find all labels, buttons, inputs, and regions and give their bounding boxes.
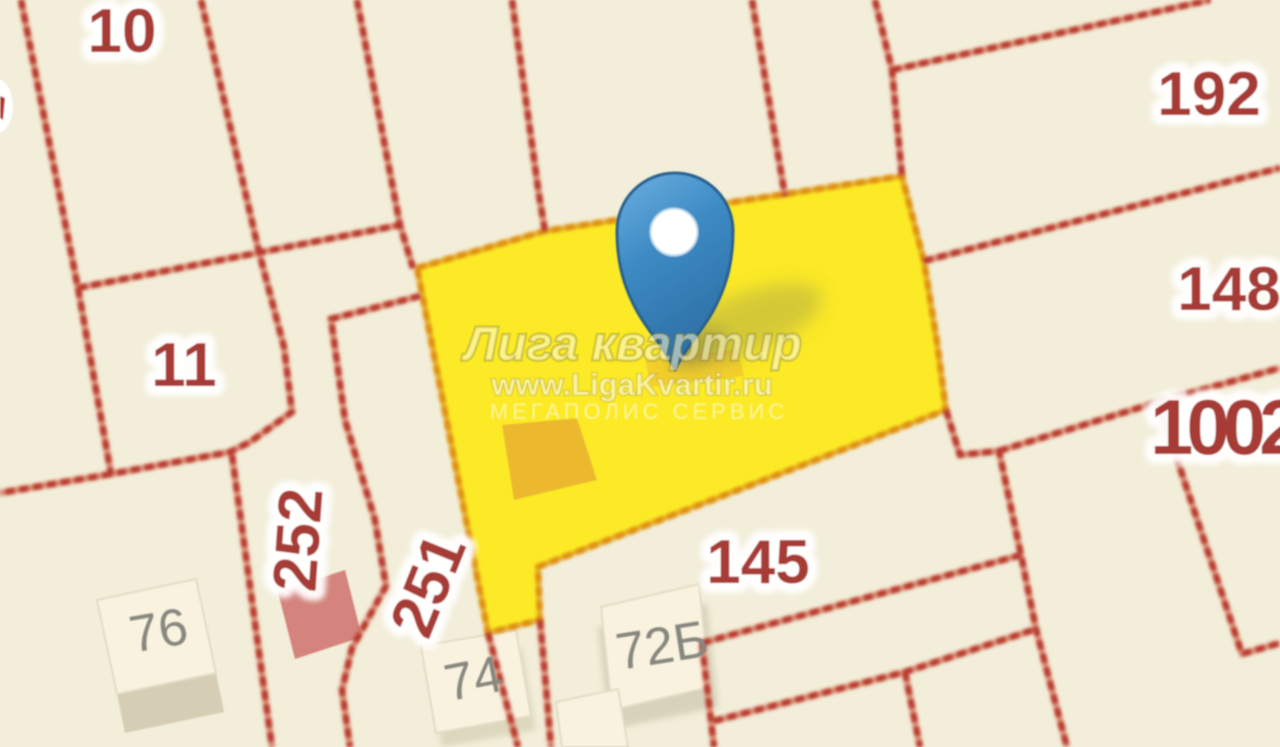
svg-text:1002: 1002 xyxy=(1150,383,1280,471)
svg-text:145: 145 xyxy=(706,528,809,597)
svg-text:11: 11 xyxy=(151,331,217,400)
svg-text:148: 148 xyxy=(1177,255,1280,324)
svg-text:10: 10 xyxy=(88,0,157,66)
svg-text:www.LigaKvartir.ru: www.LigaKvartir.ru xyxy=(490,367,772,402)
svg-text:192: 192 xyxy=(1157,60,1260,129)
svg-text:МЕГАПОЛИС СЕРВИС: МЕГАПОЛИС СЕРВИС xyxy=(490,399,788,424)
svg-text:74: 74 xyxy=(440,645,508,713)
svg-text:252: 252 xyxy=(260,486,336,594)
svg-text:76: 76 xyxy=(125,597,192,664)
svg-text:Лига квартир: Лига квартир xyxy=(461,318,801,371)
